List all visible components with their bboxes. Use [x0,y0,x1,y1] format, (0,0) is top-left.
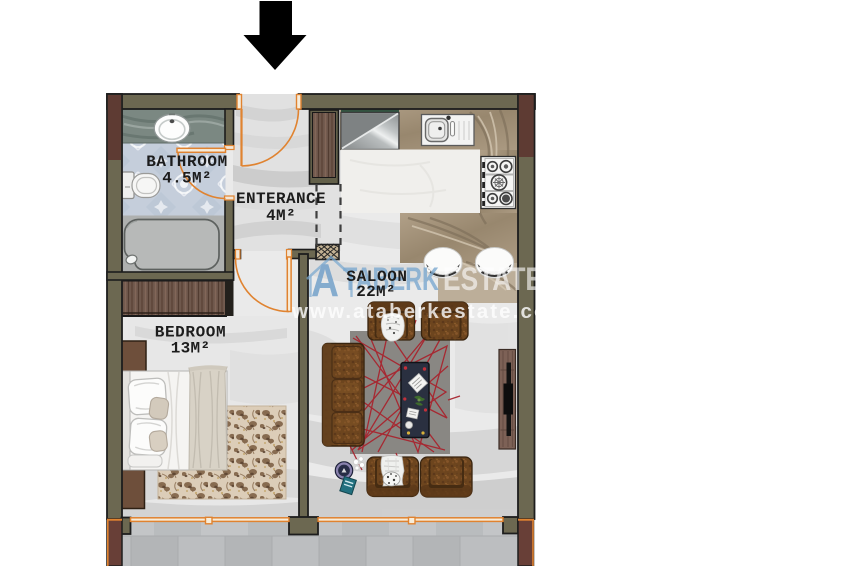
svg-text:4M²: 4M² [266,207,296,225]
svg-text:13M²: 13M² [171,340,211,358]
svg-text:www.ataberkestate.com: www.ataberkestate.com [291,300,569,323]
svg-text:BATHROOM: BATHROOM [146,153,228,171]
svg-text:A: A [311,254,339,306]
svg-text:ESTATE: ESTATE [443,261,543,297]
svg-text:22M²: 22M² [356,283,396,301]
svg-text:4.5M²: 4.5M² [162,170,212,188]
svg-text:ENTERANCE: ENTERANCE [236,190,326,208]
